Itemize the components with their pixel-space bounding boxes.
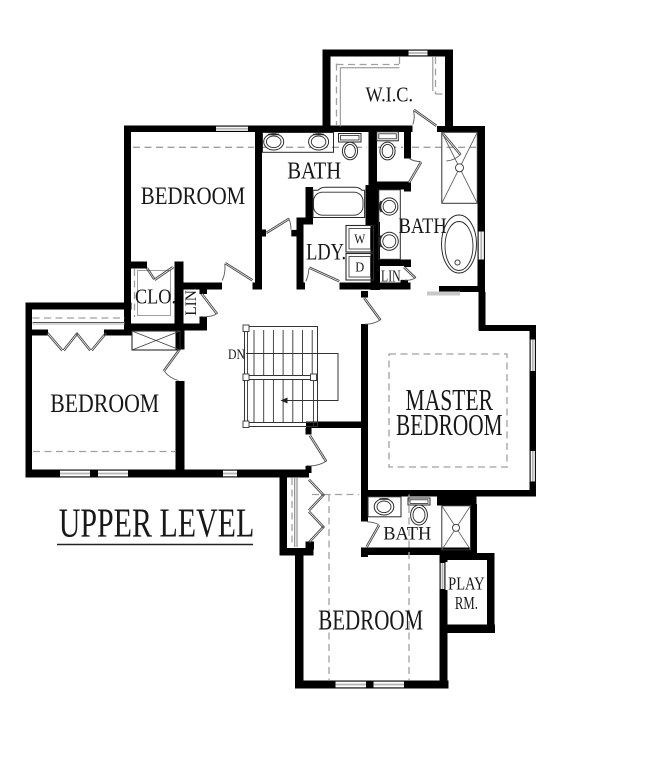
svg-text:BEDROOM: BEDROOM bbox=[318, 604, 423, 636]
svg-text:BEDROOM: BEDROOM bbox=[50, 389, 159, 418]
svg-text:DN: DN bbox=[228, 347, 245, 363]
svg-text:PLAY: PLAY bbox=[448, 573, 485, 593]
svg-text:D: D bbox=[355, 261, 364, 276]
svg-text:BATH: BATH bbox=[383, 523, 431, 544]
svg-text:BATH: BATH bbox=[287, 158, 341, 184]
svg-text:UPPER LEVEL: UPPER LEVEL bbox=[59, 500, 255, 546]
svg-text:BEDROOM: BEDROOM bbox=[141, 183, 246, 210]
svg-text:W.I.C.: W.I.C. bbox=[366, 83, 414, 107]
svg-text:LDY.: LDY. bbox=[306, 240, 346, 265]
svg-text:LIN.: LIN. bbox=[183, 286, 200, 316]
svg-text:LIN.: LIN. bbox=[381, 267, 404, 286]
svg-text:BATH: BATH bbox=[399, 213, 447, 238]
svg-text:RM.: RM. bbox=[455, 593, 478, 613]
svg-text:W: W bbox=[354, 233, 366, 248]
svg-text:BEDROOM: BEDROOM bbox=[396, 407, 503, 442]
svg-text:CLO.: CLO. bbox=[135, 284, 176, 308]
